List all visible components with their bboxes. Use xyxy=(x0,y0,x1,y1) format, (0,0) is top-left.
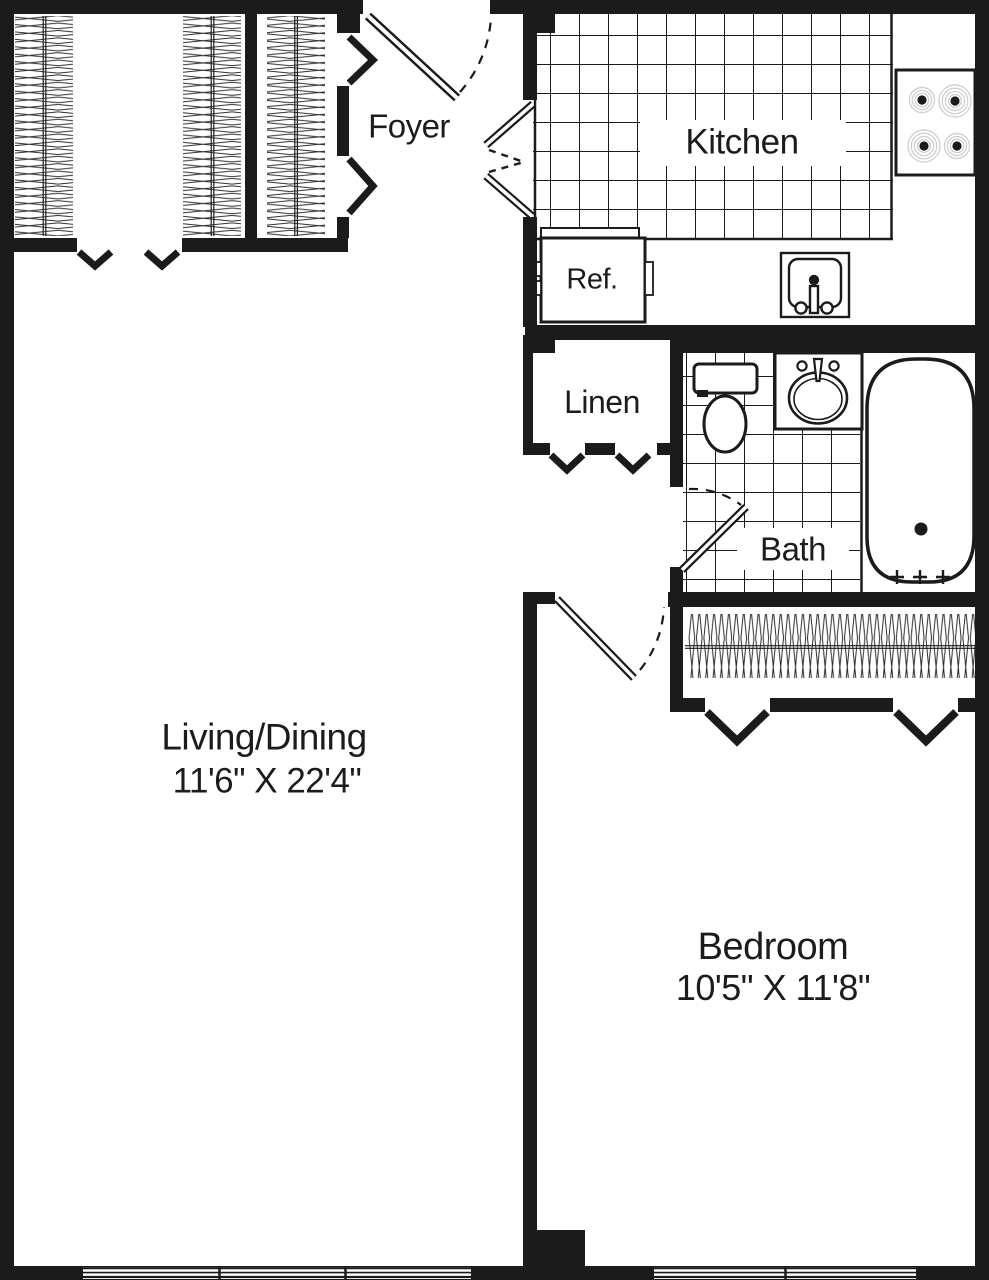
wall-linen-bottom-right xyxy=(657,443,672,455)
wall-bath-top xyxy=(672,340,989,353)
floor-plan-drawing xyxy=(0,0,989,1280)
wall-closet2-post-top xyxy=(337,14,360,33)
kitchen-double-door-icon xyxy=(486,104,533,216)
bedroom-windows xyxy=(654,1266,916,1280)
wall-closet2-post-mid xyxy=(337,86,349,156)
wall-closet-divider xyxy=(245,14,257,238)
closet-hangers-left-1 xyxy=(15,16,73,236)
burner-bottom-right xyxy=(945,134,970,159)
refrigerator-label: Ref. xyxy=(566,266,617,295)
bedroom-closet-bifold-icon xyxy=(707,712,956,741)
wall-living-bedroom xyxy=(523,604,537,1230)
kitchen-label: Kitchen xyxy=(685,125,798,160)
wall-bedroom-closet-bottom-mid xyxy=(770,698,893,712)
bathtub-icon xyxy=(867,359,974,584)
living-dining-label: Living/Dining xyxy=(161,719,366,756)
linen-label: Linen xyxy=(564,386,640,418)
closet-hangers-left-2 xyxy=(183,16,241,236)
wall-left xyxy=(0,0,14,1280)
wall-bath-door-stub xyxy=(670,567,683,592)
wall-closet-bottom-right xyxy=(182,238,348,252)
wall-closet2-post-bottom xyxy=(337,217,349,238)
wall-bedroom-closet-bottom-left xyxy=(670,698,705,712)
bedroom-label: Bedroom xyxy=(698,928,849,966)
linen-bifold-icon xyxy=(551,455,649,470)
kitchen-sink-icon xyxy=(781,253,849,317)
living-dining-dimensions: 11'6" X 22'4" xyxy=(173,764,362,799)
wall-linen-bath xyxy=(670,335,683,487)
closet1-bifold-icon xyxy=(79,252,178,266)
wall-bedroom-closet-left xyxy=(670,607,683,698)
vanity-sink-icon xyxy=(775,353,862,429)
wall-kitchen-foyer-notch xyxy=(523,14,555,33)
bedroom-dimensions: 10'5" X 11'8" xyxy=(676,970,870,1006)
wall-top-left xyxy=(0,0,363,14)
wall-bedroom-closet-bottom-right xyxy=(958,698,975,712)
burner-top-right xyxy=(939,85,971,117)
wall-linen-corner xyxy=(523,335,555,353)
closet-hangers-bedroom xyxy=(685,614,975,678)
wall-linen-bottom-mid xyxy=(585,443,615,455)
wall-column xyxy=(523,1230,585,1266)
wall-linen-bottom-left xyxy=(523,443,550,455)
closet-hangers-foyer xyxy=(267,16,325,236)
wall-bath-bottom xyxy=(668,592,975,607)
wall-closet-bottom-left xyxy=(14,238,77,252)
tub-drain xyxy=(915,523,928,536)
burner-top-left xyxy=(910,88,935,113)
wall-right xyxy=(975,0,989,1280)
living-room-windows xyxy=(83,1266,471,1280)
floor-plan: Foyer Kitchen Ref. Linen Bath Living/Din… xyxy=(0,0,989,1280)
wall-kitchen-foyer-bottom xyxy=(523,217,537,327)
stove-icon xyxy=(896,70,975,175)
bedroom-door-icon xyxy=(557,599,664,678)
burner-bottom-left xyxy=(908,130,940,162)
wall-top-right xyxy=(490,0,989,14)
wall-kitchen-bottom xyxy=(525,325,989,340)
wall-bedroom-door-cap xyxy=(523,592,555,604)
entry-door-icon xyxy=(368,16,491,98)
bath-label: Bath xyxy=(760,533,826,566)
foyer-label: Foyer xyxy=(368,110,450,143)
